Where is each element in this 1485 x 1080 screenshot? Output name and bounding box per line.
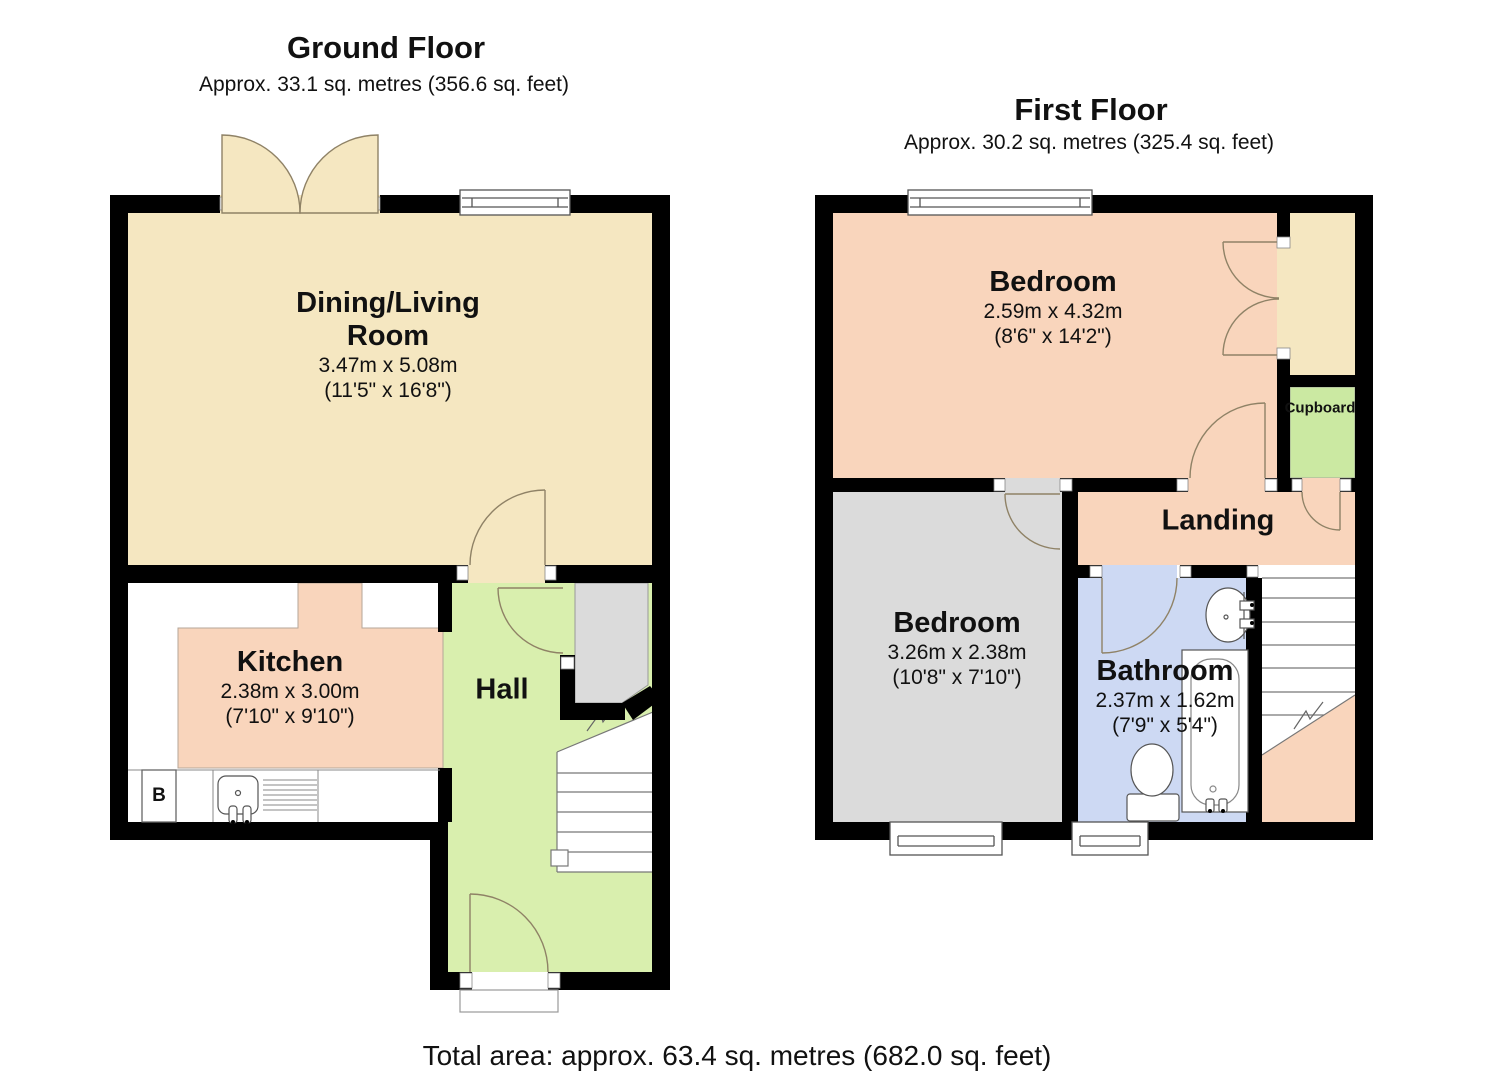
room-dims-imperial: (10'8" x 7'10") [888,665,1027,690]
ff-window-bathroom [1072,822,1148,855]
gf-stairs-newel [551,850,568,866]
room-name: Bathroom [1096,655,1235,688]
total-area-text: Total area: approx. 63.4 sq. metres (682… [423,1040,1052,1072]
room-dims-metric: 2.59m x 4.32m [984,299,1123,324]
boiler-label: B [152,785,166,807]
ground-floor-plan [110,135,670,1012]
floorplan-page: Ground Floor Approx. 33.1 sq. metres (35… [0,0,1485,1080]
room-name: Room [296,320,480,353]
kitchen-label: Kitchen 2.38m x 3.00m (7'10" x 9'10") [221,646,360,729]
bedroom2-label: Bedroom 3.26m x 2.38m (10'8" x 7'10") [888,607,1027,690]
bedroom1-doorway [1188,478,1265,492]
room-name: Dining/Living [296,287,480,320]
wardrobe-floor [1290,213,1355,375]
room-dims-imperial: (7'10" x 9'10") [221,704,360,729]
room-dims-metric: 3.26m x 2.38m [888,640,1027,665]
ground-floor-title: Ground Floor [287,30,485,66]
bedroom2-doorway [1005,478,1060,492]
room-dims-metric: 2.38m x 3.00m [221,679,360,704]
understairs-cupboard [575,583,648,703]
first-floor-title: First Floor [1014,92,1167,128]
room-dims-metric: 2.37m x 1.62m [1096,688,1235,713]
room-dims-metric: 3.47m x 5.08m [296,353,480,378]
dining-doorway [468,565,545,583]
floorplan-drawing [0,0,1485,1080]
bathroom-label: Bathroom 2.37m x 1.62m (7'9" x 5'4") [1096,655,1235,738]
ff-window-bedroom2 [890,822,1002,855]
ground-floor-subtitle: Approx. 33.1 sq. metres (356.6 sq. feet) [199,73,569,97]
bedroom1-label: Bedroom 2.59m x 4.32m (8'6" x 14'2") [984,266,1123,349]
kitchen-drainer [263,780,317,810]
cupboard-doorway [1302,478,1340,492]
room-dims-imperial: (8'6" x 14'2") [984,324,1123,349]
hall-label: Hall [475,674,528,707]
dining-living-room-label: Dining/Living Room 3.47m x 5.08m (11'5" … [296,287,480,403]
cupboard-label: Cupboard [1285,400,1356,417]
landing-label: Landing [1162,505,1275,538]
room-name: Bedroom [984,266,1123,299]
ff-window-top [908,190,1092,215]
room-name: Bedroom [888,607,1027,640]
bathroom-doorway [1102,565,1177,578]
room-name: Kitchen [221,646,360,679]
entrance-step [460,990,558,1012]
room-dims-imperial: (7'9" x 5'4") [1096,713,1235,738]
gf-window-top [460,190,570,215]
first-floor-subtitle: Approx. 30.2 sq. metres (325.4 sq. feet) [904,131,1274,155]
room-dims-imperial: (11'5" x 16'8") [296,378,480,403]
